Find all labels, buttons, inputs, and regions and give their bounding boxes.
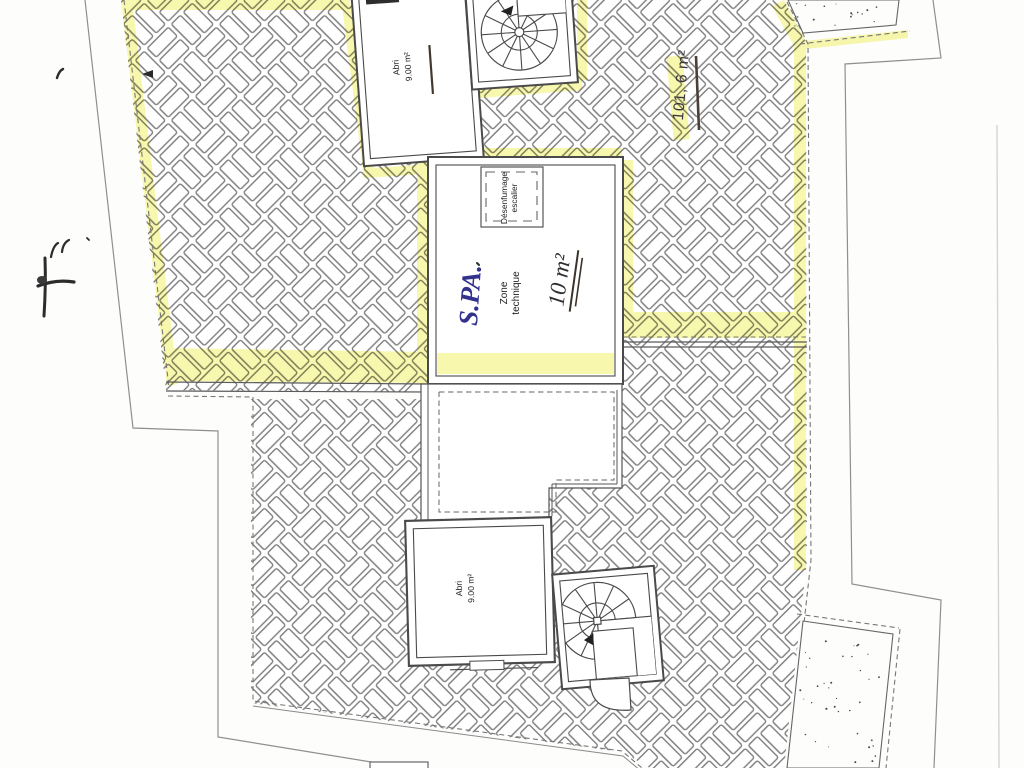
svg-text:technique: technique — [511, 271, 522, 315]
svg-text:9.00 m²: 9.00 m² — [466, 573, 477, 603]
svg-text:Zone: Zone — [499, 281, 510, 304]
svg-text:Abri: Abri — [390, 59, 401, 75]
svg-text:escalier: escalier — [509, 183, 519, 212]
svg-text:Désenfumage: Désenfumage — [499, 172, 509, 224]
svg-text:Abri: Abri — [454, 581, 464, 597]
svg-text:S.PA.: S.PA. — [453, 264, 487, 327]
svg-text:9.00 m²: 9.00 m² — [402, 52, 414, 82]
